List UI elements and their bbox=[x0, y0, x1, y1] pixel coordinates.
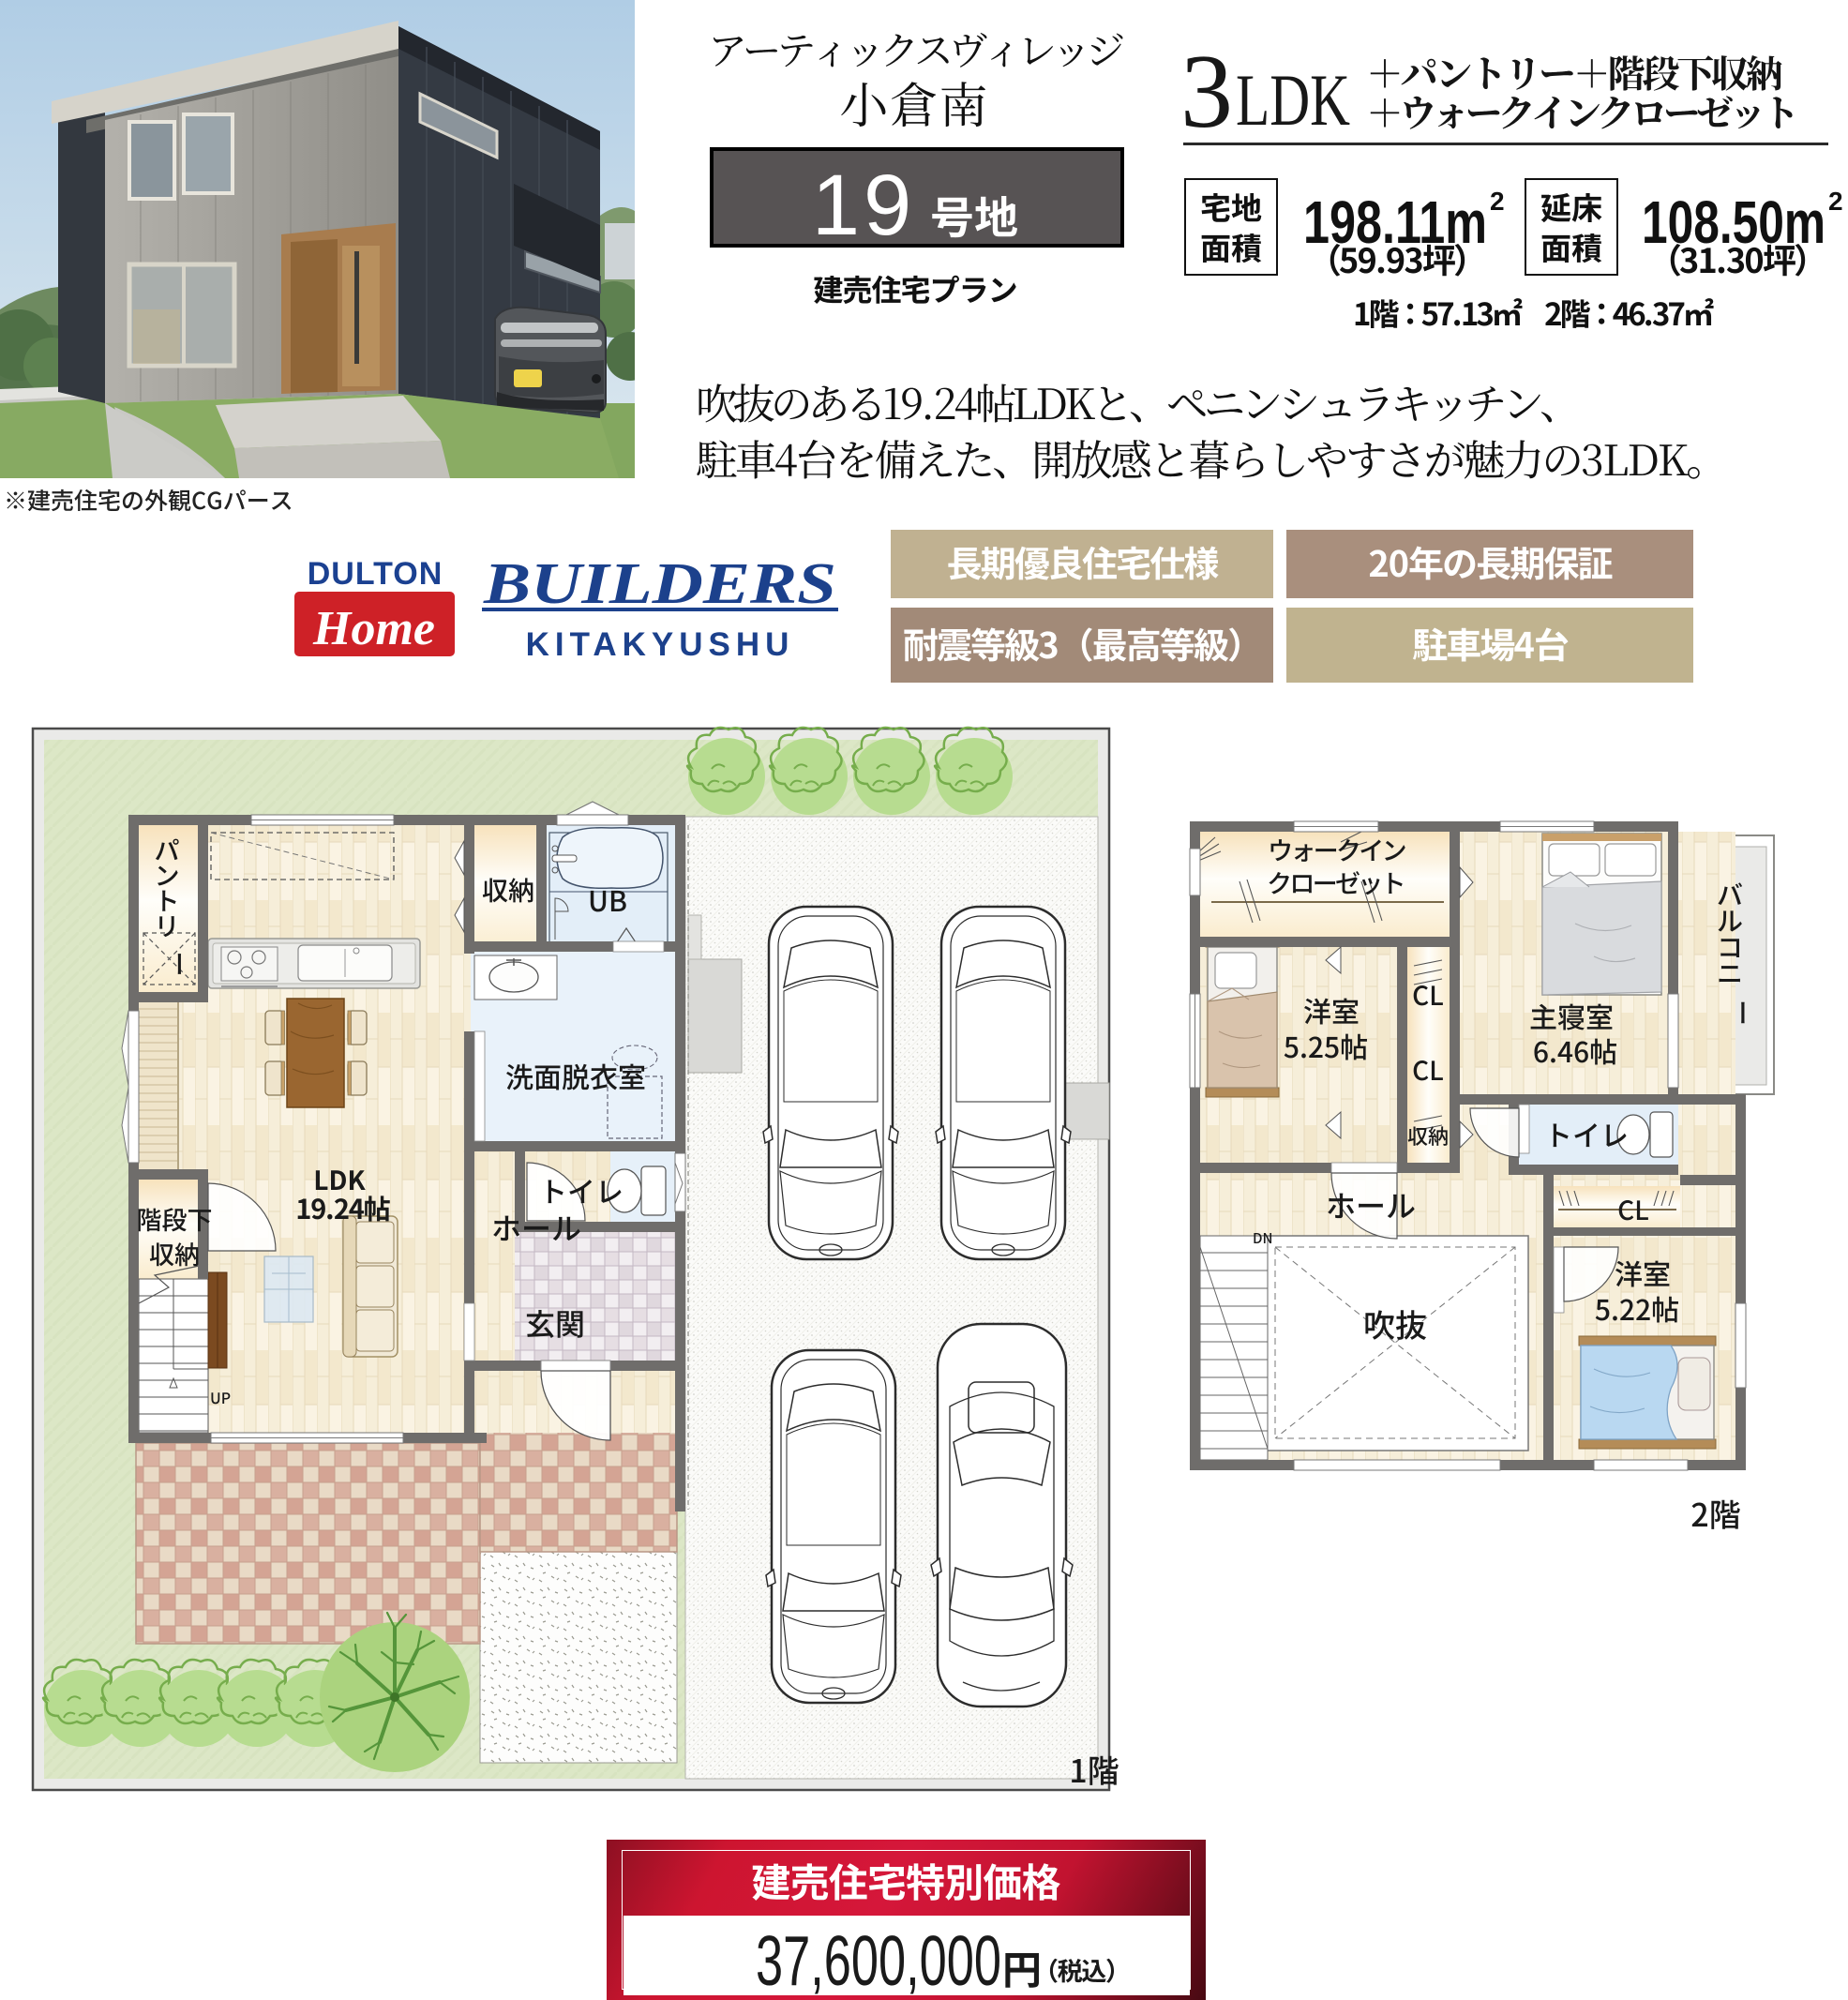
svg-text:DULTON: DULTON bbox=[308, 556, 443, 592]
svg-text:108.50m: 108.50m bbox=[1642, 188, 1825, 256]
svg-text:BUILDERS: BUILDERS bbox=[483, 552, 836, 616]
svg-text:198.11m: 198.11m bbox=[1303, 188, 1487, 256]
svg-text:LDK: LDK bbox=[1236, 59, 1350, 141]
svg-text:3: 3 bbox=[1180, 34, 1233, 150]
svg-text:2: 2 bbox=[1490, 187, 1505, 216]
svg-text:2: 2 bbox=[1828, 187, 1843, 216]
svg-text:KITAKYUSHU: KITAKYUSHU bbox=[526, 626, 795, 663]
